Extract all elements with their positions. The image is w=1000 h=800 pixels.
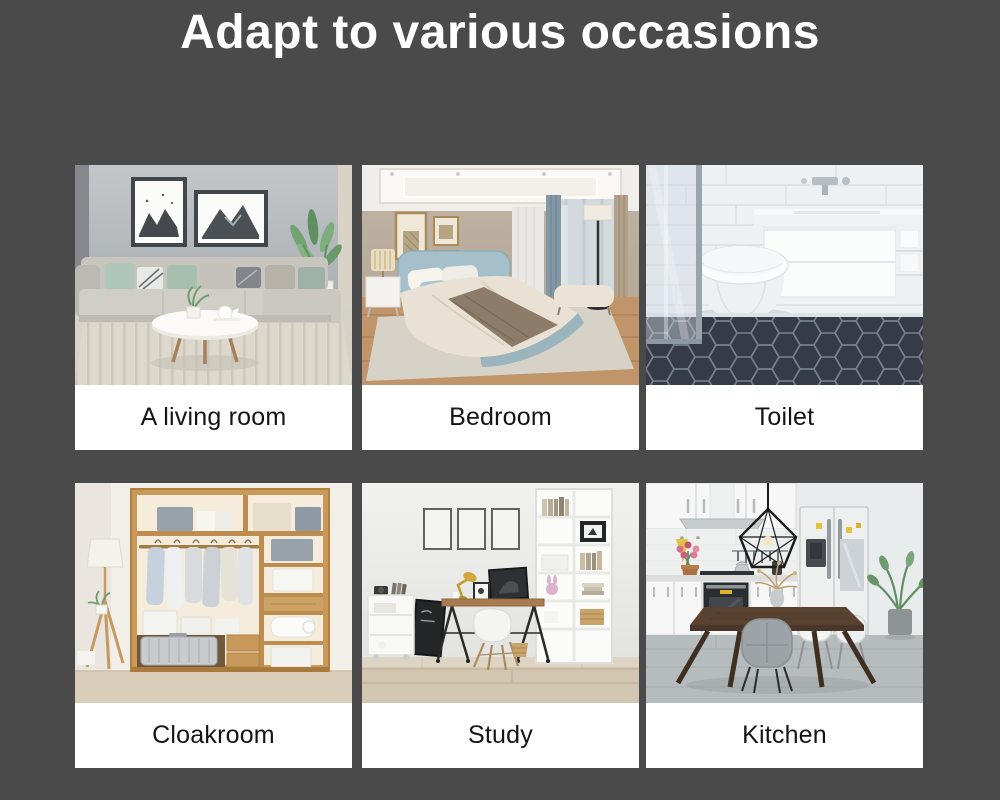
nightstand-lamp <box>366 249 400 317</box>
kitchen-photo <box>646 483 923 703</box>
stool <box>77 651 95 665</box>
card-study: Study <box>362 483 639 768</box>
kitchen-illustration <box>646 483 923 703</box>
floor <box>75 671 352 703</box>
bookshelf <box>536 489 612 663</box>
cloakroom-illustration <box>75 483 352 703</box>
empty-frames <box>424 509 519 549</box>
bedroom-photo <box>362 165 639 385</box>
page-title: Adapt to various occasions <box>0 2 1000 64</box>
cloakroom-photo <box>75 483 352 703</box>
card-toilet: Toilet <box>646 165 923 450</box>
card-label-kitchen: Kitchen <box>646 703 923 768</box>
study-photo <box>362 483 639 703</box>
side-cart <box>368 583 414 660</box>
card-label-study: Study <box>362 703 639 768</box>
bedroom-illustration <box>362 165 639 385</box>
promo-image: Adapt to various occasions <box>0 0 1000 800</box>
suitcase <box>141 633 217 665</box>
card-label-bedroom: Bedroom <box>362 385 639 450</box>
card-label-toilet: Toilet <box>646 385 923 450</box>
card-kitchen: Kitchen <box>646 483 923 768</box>
shower-glass <box>646 165 702 344</box>
toilet-photo <box>646 165 923 385</box>
toilet-illustration <box>646 165 923 385</box>
card-label-cloakroom: Cloakroom <box>75 703 352 768</box>
living-room-photo <box>75 165 352 385</box>
storage-basket <box>512 643 528 657</box>
living-room-illustration <box>75 165 352 385</box>
wardrobe <box>131 489 329 672</box>
card-label-living-room: A living room <box>75 385 352 450</box>
study-illustration <box>362 483 639 703</box>
card-living-room: A living room <box>75 165 352 450</box>
card-cloakroom: Cloakroom <box>75 483 352 768</box>
card-bedroom: Bedroom <box>362 165 639 450</box>
